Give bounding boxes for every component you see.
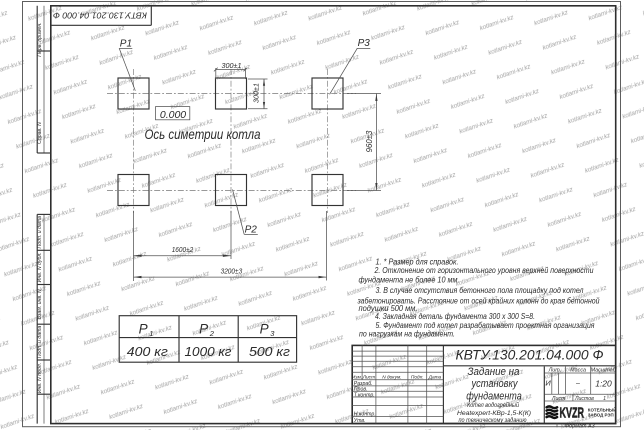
svg-text:Листов: Листов bbox=[574, 396, 594, 402]
svg-text:И: И bbox=[545, 379, 551, 388]
svg-text:Взам. инв. N: Взам. инв. N bbox=[37, 289, 43, 319]
svg-text:КВТУ.130.201.04.000 Ф: КВТУ.130.201.04.000 Ф bbox=[456, 347, 604, 363]
svg-text:Котел водогрейный: Котел водогрейный bbox=[467, 402, 519, 409]
svg-text:–: – bbox=[575, 380, 580, 387]
svg-text:N докум.: N докум. bbox=[382, 374, 401, 380]
svg-text:Лист: Лист bbox=[362, 374, 375, 380]
svg-text:Подп.: Подп. bbox=[411, 374, 424, 380]
svg-text:Справ. N: Справ. N bbox=[37, 122, 43, 144]
svg-text:установку: установку bbox=[471, 378, 518, 390]
svg-text:3200±3: 3200±3 bbox=[221, 267, 243, 276]
svg-text:KVZR: KVZR bbox=[560, 404, 585, 421]
svg-text:фундамента не более 10 мм.: фундамента не более 10 мм. bbox=[359, 276, 460, 285]
svg-text:Т.контр.: Т.контр. bbox=[354, 392, 375, 398]
svg-text:Утв.: Утв. bbox=[354, 418, 366, 424]
svg-text:Лит.: Лит. bbox=[548, 368, 562, 374]
svg-text:300±1: 300±1 bbox=[222, 61, 242, 70]
svg-text:Изм.: Изм. bbox=[352, 374, 362, 380]
svg-text:Масса: Масса bbox=[570, 368, 586, 374]
svg-text:3. В случае отсутствия бетонно: 3. В случае отсутствия бетонного пола пл… bbox=[376, 286, 585, 295]
svg-text:Р1: Р1 bbox=[120, 38, 132, 49]
svg-text:Р3: Р3 bbox=[358, 38, 371, 49]
svg-text:1000 кг: 1000 кг bbox=[185, 345, 232, 359]
svg-text:Перв. примен.: Перв. примен. bbox=[37, 22, 43, 56]
svg-text:по нагрузкам на фундамент.: по нагрузкам на фундамент. bbox=[359, 329, 455, 338]
svg-text:Задание на: Задание на bbox=[468, 366, 520, 378]
svg-text:Дата: Дата bbox=[428, 374, 442, 380]
svg-text:300±1: 300±1 bbox=[252, 83, 261, 103]
svg-text:500 кг: 500 кг bbox=[249, 345, 290, 359]
svg-text:ЗАВОД РЭП: ЗАВОД РЭП bbox=[588, 412, 614, 417]
svg-text:4. Закладная деталь фундамента: 4. Закладная деталь фундамента 300 x 300… bbox=[375, 312, 535, 321]
svg-text:Лист: Лист bbox=[551, 396, 566, 402]
svg-text:Инв. N дубл.: Инв. N дубл. bbox=[37, 252, 43, 282]
svg-text:Р2: Р2 bbox=[245, 224, 258, 235]
svg-text:1:20: 1:20 bbox=[595, 379, 612, 389]
svg-text:1600±2: 1600±2 bbox=[172, 245, 194, 254]
svg-text:400 кг: 400 кг bbox=[127, 345, 168, 359]
svg-text:Heatexpert-КВр-1,5-К(К): Heatexpert-КВр-1,5-К(К) bbox=[457, 410, 531, 417]
svg-text:фундамента: фундамента bbox=[466, 390, 522, 402]
svg-text:0.000: 0.000 bbox=[160, 109, 186, 121]
svg-text:1: 1 bbox=[603, 396, 606, 402]
svg-text:Инв. N подл.: Инв. N подл. bbox=[37, 363, 43, 393]
svg-text:2. Отклонение от горизонтально: 2. Отклонение от горизонтального уровня … bbox=[374, 266, 594, 275]
svg-text:КВТУ.130.201.04.000 Ф: КВТУ.130.201.04.000 Ф bbox=[52, 10, 147, 19]
svg-text:по техническому заданию: по техническому заданию bbox=[459, 417, 527, 424]
svg-text:Подп. и дата: Подп. и дата bbox=[37, 216, 43, 249]
svg-text:Подп. и дата: Подп. и дата bbox=[37, 326, 43, 359]
svg-text:Формат А3: Формат А3 bbox=[565, 423, 595, 429]
svg-text:1. * Размер для справок.: 1. * Размер для справок. bbox=[376, 257, 459, 266]
svg-text:960±3: 960±3 bbox=[365, 130, 374, 152]
svg-text:Н.контр.: Н.контр. bbox=[354, 412, 376, 418]
svg-text:Масштаб: Масштаб bbox=[591, 368, 617, 374]
svg-text:Ось симетрии котла: Ось симетрии котла bbox=[145, 126, 261, 142]
